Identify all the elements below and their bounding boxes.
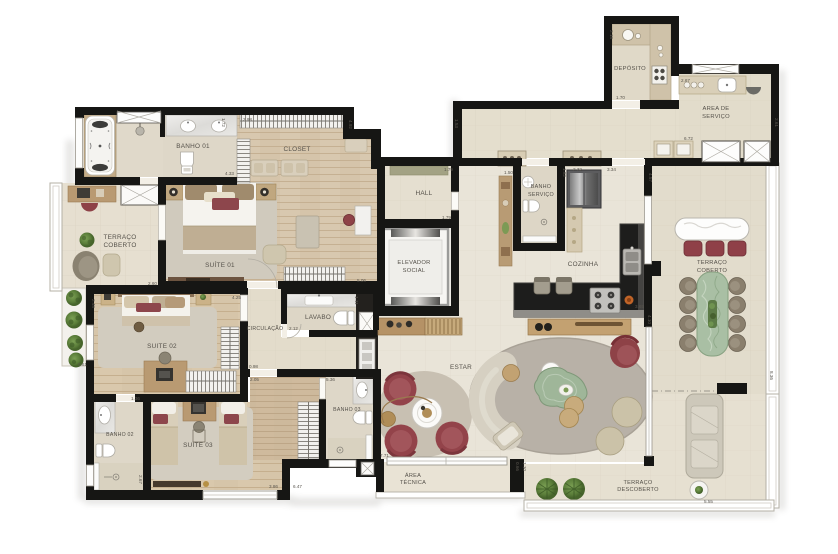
svg-text:COBERTO: COBERTO <box>697 268 727 274</box>
svg-text:CIRCULAÇÃO: CIRCULAÇÃO <box>247 325 284 332</box>
svg-text:5.36: 5.36 <box>326 377 335 382</box>
svg-text:1.72: 1.72 <box>221 118 226 127</box>
svg-text:0.61: 0.61 <box>78 362 87 367</box>
svg-text:1.53: 1.53 <box>454 119 459 128</box>
svg-text:ELEVADOR: ELEVADOR <box>397 260 430 266</box>
svg-text:TERRAÇO: TERRAÇO <box>104 234 137 241</box>
svg-text:5.06: 5.06 <box>357 278 366 283</box>
svg-text:SUITE 03: SUITE 03 <box>183 442 213 449</box>
svg-text:3.34: 3.34 <box>607 167 616 172</box>
svg-text:0.66: 0.66 <box>515 462 520 471</box>
svg-text:4.92: 4.92 <box>348 120 353 129</box>
svg-text:1.82: 1.82 <box>562 168 567 177</box>
svg-text:CLOSET: CLOSET <box>283 146 310 153</box>
svg-text:TERRAÇO: TERRAÇO <box>623 480 652 486</box>
svg-text:ESTAR: ESTAR <box>450 364 472 371</box>
svg-text:1.79: 1.79 <box>444 167 453 172</box>
svg-text:3.65: 3.65 <box>635 304 644 309</box>
svg-text:1.50: 1.50 <box>504 170 513 175</box>
svg-text:4.10: 4.10 <box>647 315 652 324</box>
svg-text:7.71: 7.71 <box>380 453 389 458</box>
svg-text:8.36: 8.36 <box>769 371 774 380</box>
svg-text:COBERTO: COBERTO <box>103 242 136 249</box>
svg-text:0.98: 0.98 <box>249 364 258 369</box>
svg-text:1.11: 1.11 <box>354 296 359 305</box>
svg-text:2.48: 2.48 <box>91 299 96 308</box>
svg-text:AREA DE: AREA DE <box>703 106 730 112</box>
svg-text:4.25: 4.25 <box>232 295 241 300</box>
svg-text:BANHO 03: BANHO 03 <box>333 407 361 413</box>
svg-text:TÉCNICA: TÉCNICA <box>400 479 426 486</box>
svg-text:1.36: 1.36 <box>131 396 140 401</box>
svg-text:SOCIAL: SOCIAL <box>403 268 426 274</box>
svg-text:3.86: 3.86 <box>269 484 278 489</box>
svg-text:2.61: 2.61 <box>774 118 779 127</box>
svg-text:2.12: 2.12 <box>289 326 298 331</box>
svg-text:BANHO: BANHO <box>531 184 551 190</box>
svg-text:6.72: 6.72 <box>684 136 693 141</box>
svg-text:SUITE 02: SUITE 02 <box>147 343 177 350</box>
svg-text:HALL: HALL <box>416 190 433 197</box>
svg-text:2.18: 2.18 <box>609 30 614 39</box>
svg-text:ÁREA: ÁREA <box>405 472 421 479</box>
svg-text:2.05: 2.05 <box>250 377 259 382</box>
svg-text:BANHO 02: BANHO 02 <box>106 432 134 438</box>
svg-text:5.55: 5.55 <box>704 499 713 504</box>
svg-text:TERRAÇO: TERRAÇO <box>697 260 727 266</box>
svg-text:1.79: 1.79 <box>442 215 451 220</box>
svg-text:LAVABO: LAVABO <box>305 314 331 321</box>
svg-text:2.67: 2.67 <box>138 475 143 484</box>
svg-text:COZINHA: COZINHA <box>568 261 599 268</box>
svg-text:DESCOBERTO: DESCOBERTO <box>617 487 659 493</box>
svg-text:2.67: 2.67 <box>681 78 690 83</box>
svg-text:DEPÓSITO: DEPÓSITO <box>614 65 646 72</box>
svg-text:1.10: 1.10 <box>522 462 527 471</box>
svg-text:4.57: 4.57 <box>648 173 653 182</box>
svg-text:2.98: 2.98 <box>243 117 252 122</box>
svg-text:2.60: 2.60 <box>148 281 157 286</box>
svg-text:2.32: 2.32 <box>573 167 582 172</box>
svg-text:SERVIÇO: SERVIÇO <box>528 192 554 198</box>
svg-text:SERVIÇO: SERVIÇO <box>702 114 730 120</box>
svg-text:1.70: 1.70 <box>616 95 625 100</box>
svg-text:BANHO 01: BANHO 01 <box>176 143 210 150</box>
svg-text:SUÍTE 01: SUÍTE 01 <box>205 260 235 269</box>
svg-text:6.47: 6.47 <box>293 484 302 489</box>
svg-text:4.33: 4.33 <box>225 171 234 176</box>
